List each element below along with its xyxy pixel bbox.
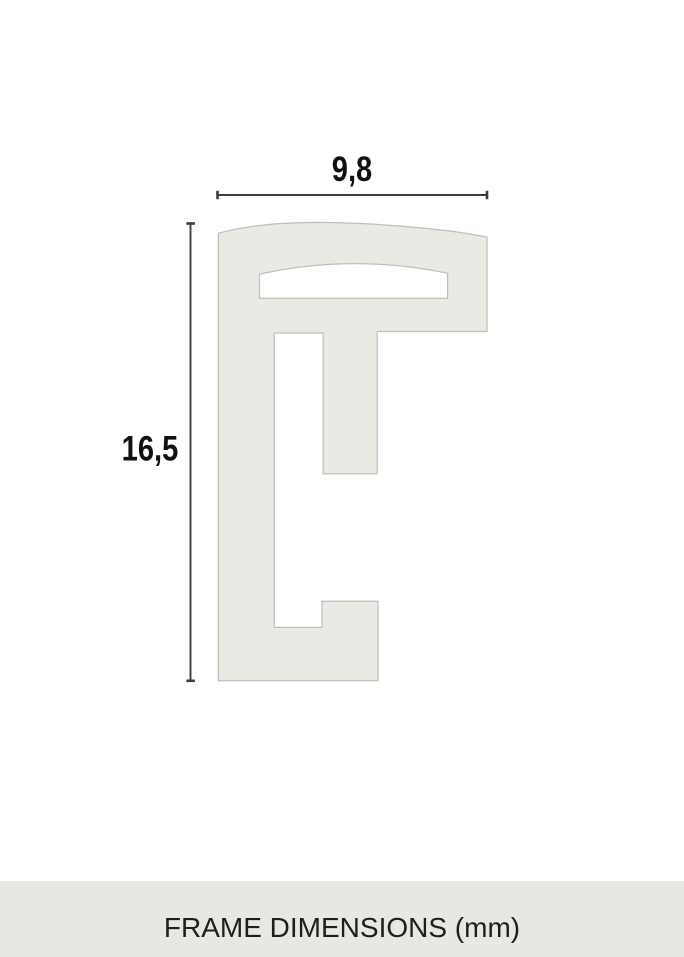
svg-text:FRAME DIMENSIONS (mm): FRAME DIMENSIONS (mm): [164, 912, 520, 943]
svg-text:16,5: 16,5: [122, 429, 179, 468]
svg-text:9,8: 9,8: [332, 149, 372, 188]
